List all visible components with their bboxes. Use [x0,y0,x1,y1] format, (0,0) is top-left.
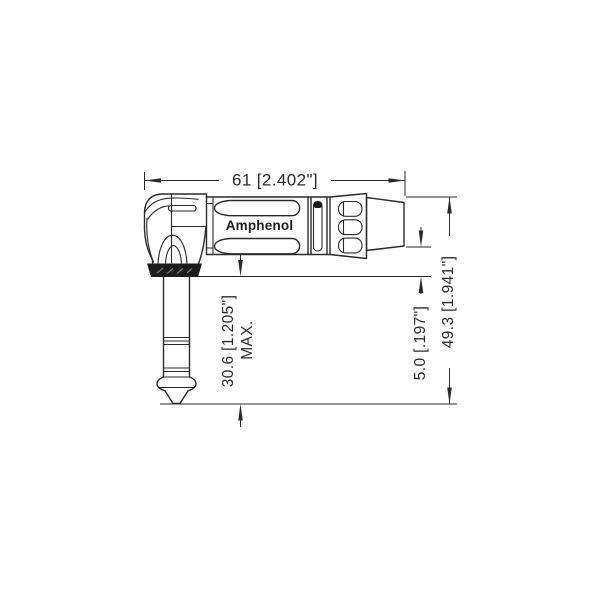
dim-overall-length-label: 61 [2.402"] [232,171,318,190]
dim-height-arrow-top [447,197,452,214]
dim-plug-height-label: 30.6 [1.205"] [220,295,237,388]
plug-tip-bulb [157,377,196,391]
dim-overall-length: 61 [2.402"] [145,171,406,197]
elbow-right-contour [199,227,207,264]
drawing-canvas: Amphenol [0,0,600,600]
band-slot [314,202,323,252]
barrel-junction-line [207,197,214,255]
grip-cutout-2 [339,220,363,235]
dim-boot-offset-label: 5.0 [.197"] [412,306,429,381]
trs-plug [157,278,196,404]
dim-length-arrow-left [145,178,162,183]
dim-plug-height: 30.6 [1.205"] MAX. [220,255,256,427]
elbow-capsule-slot [169,206,197,212]
connector-latch-band [308,197,330,255]
elbow-arch-inner [166,246,182,264]
elbow-arch-outer [158,235,187,264]
dim-plug-arrow-top [238,260,243,277]
barrel-groove-bottom [215,239,300,254]
band-slot-cap [314,202,323,209]
dim-boot-offset: 5.0 [.197"] [406,227,431,380]
grip-cutout-3 [339,238,363,253]
dim-offset-arrow-bottom [419,277,424,294]
plug-tip-cone [165,391,188,404]
dim-offset-arrow-top [419,231,424,248]
dim-overall-height-label: 49.3 [1.941"] [440,256,457,349]
boot-outline [367,198,405,251]
connector-grip [330,194,367,259]
plug-sleeve [164,278,190,378]
brand-logo-text: Amphenol [226,218,294,233]
dim-length-arrow-right [389,178,406,183]
dim-plug-arrow-bottom [238,404,243,421]
barrel-groove-top [215,201,300,216]
grip-cutout-1 [339,202,363,217]
dim-plug-height-qualifier: MAX. [239,320,256,360]
connector-elbow [145,194,207,277]
plug-insulator-rings [164,338,190,378]
dim-height-arrow-bottom [447,388,452,405]
connector-boot [367,198,405,251]
technical-drawing: Amphenol [0,0,600,600]
elbow-ear-inner-curve [148,206,169,219]
connector-barrel: Amphenol [207,197,309,255]
knurled-nut [147,264,202,278]
elbow-outline [145,194,207,264]
